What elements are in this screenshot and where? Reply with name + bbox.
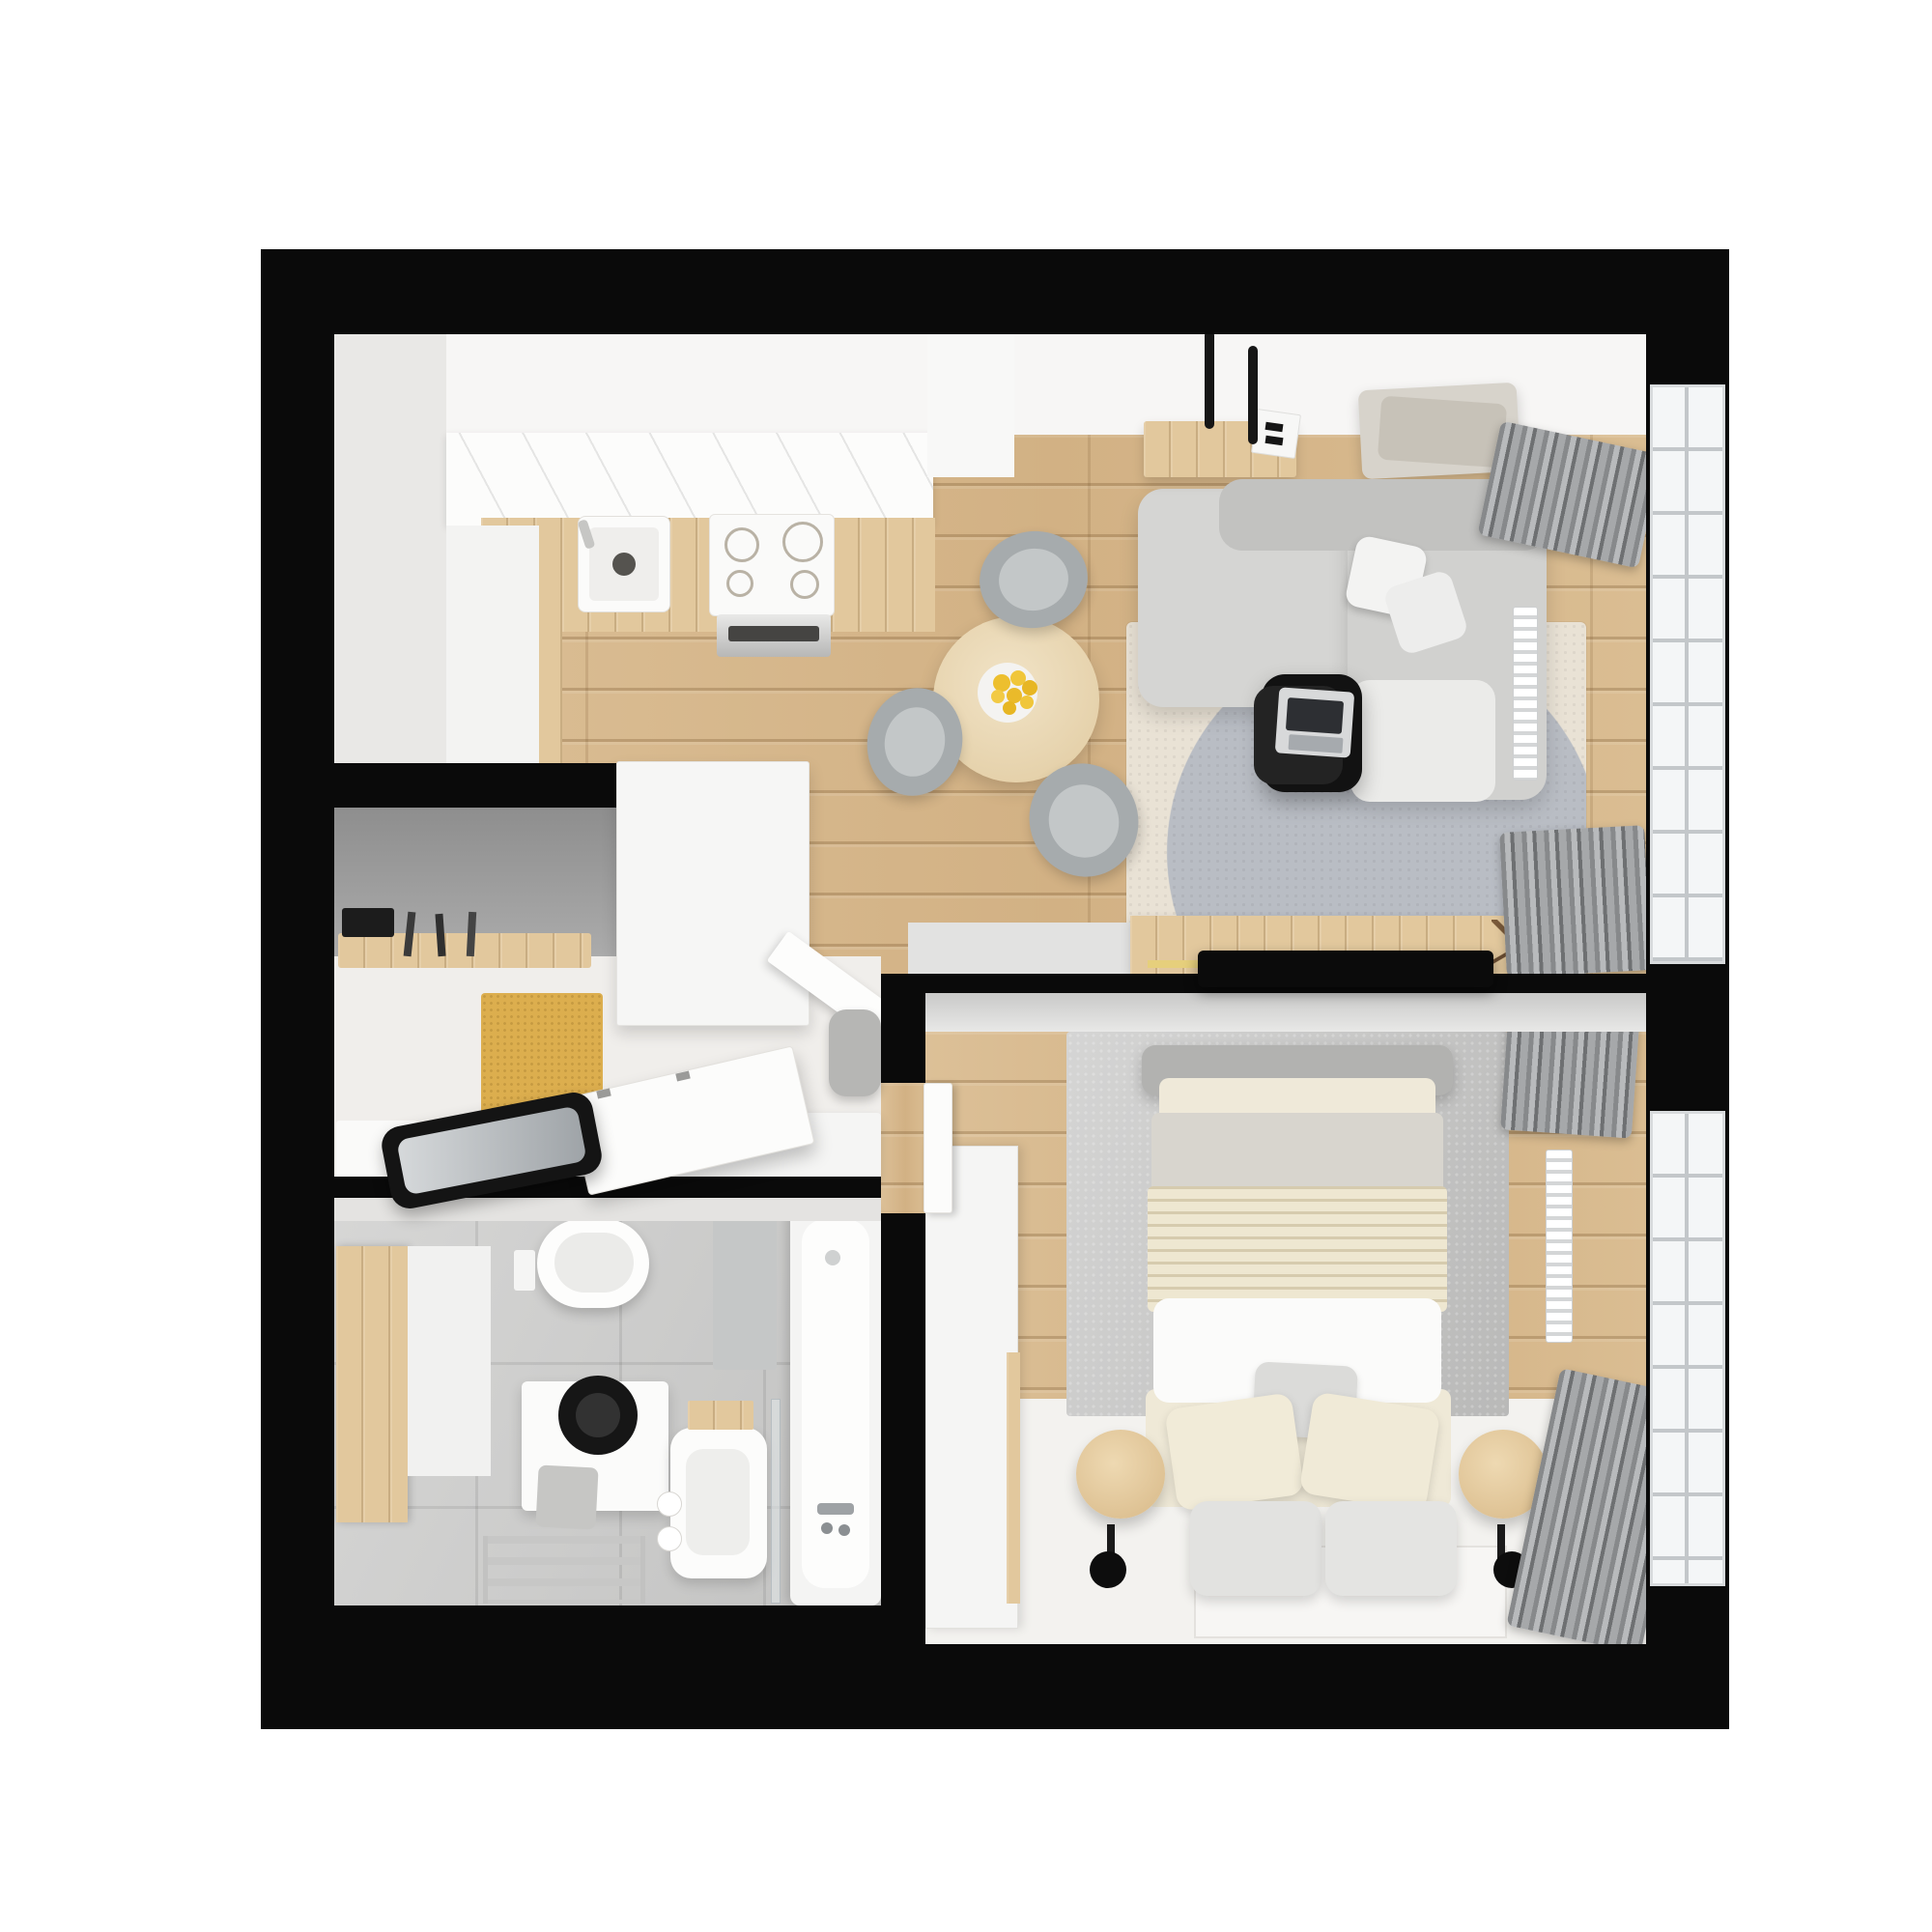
towel-ladder-radiator [483, 1536, 645, 1604]
toilet-paper-1 [657, 1492, 682, 1517]
wall-hall-bedroom-upper [881, 974, 925, 1083]
burner-1 [724, 527, 759, 562]
radiator-living [1513, 607, 1538, 781]
floor-lamp-left [1090, 1551, 1126, 1588]
toilet-paper-2 [657, 1526, 682, 1551]
hanging-towel [713, 1213, 777, 1370]
lemon-6 [1020, 696, 1034, 709]
oven-door-slot [728, 626, 819, 641]
wall-outer-top [261, 249, 1729, 334]
tv-flat-panel [1198, 951, 1493, 987]
bath-tall-cabinet [336, 1246, 408, 1522]
wall-bathroom-top [261, 1177, 881, 1198]
wall-lamp-2 [1248, 346, 1258, 444]
wall-hall-bedroom-lower [881, 1213, 925, 1644]
curtain-living-bottom [1499, 825, 1652, 978]
kitchen-end-cabinet [927, 332, 1014, 477]
kitchen-worktop [481, 518, 935, 632]
shower-glass-screen [771, 1399, 781, 1604]
tub-faucet [817, 1503, 854, 1515]
tub-drain [825, 1250, 840, 1265]
bedroom-wardrobe-door-edge [1007, 1352, 1020, 1604]
bench-cushion-left [1190, 1501, 1321, 1596]
wall-face-tv [925, 993, 1646, 1032]
tub-handle-2 [838, 1524, 850, 1536]
hall-stool [829, 1009, 881, 1096]
laptop-keyboard [1286, 697, 1344, 734]
wall-art-textile-b [1378, 396, 1507, 469]
stool-left [1076, 1430, 1165, 1519]
bed-striped-blanket [1148, 1186, 1447, 1312]
burner-2 [726, 570, 753, 597]
lemon-4 [991, 690, 1005, 703]
bedroom-door-leaf [923, 1083, 952, 1213]
apartment-floor-plan-render [0, 0, 1932, 1932]
coat-shelf [338, 933, 591, 968]
burner-3 [782, 522, 823, 562]
bed-folded-sheet [1151, 1113, 1443, 1194]
tub-handle-1 [821, 1522, 833, 1534]
bidet-shelf [688, 1401, 753, 1430]
vanity-towel [535, 1464, 598, 1529]
floor-bedroom-doorway-wood [881, 1083, 925, 1213]
coat-folded-item [342, 908, 394, 937]
bidet-bowl [686, 1449, 750, 1555]
window-bedroom [1650, 1111, 1725, 1586]
bed-pillow-left [1164, 1392, 1304, 1511]
wall-niche-top [334, 763, 616, 808]
decor-book [1251, 409, 1301, 459]
sink-drain [612, 553, 636, 576]
bath-wall-panel [408, 1246, 491, 1476]
lemon-3 [1022, 680, 1037, 696]
wall-outer-bottom-bedroom [910, 1644, 1729, 1729]
toilet-flush-plate [514, 1250, 535, 1291]
toilet-lid [554, 1233, 634, 1293]
vanity-basin-inner [576, 1393, 620, 1437]
kitchen-base-column [446, 526, 539, 763]
lemon-7 [1003, 701, 1016, 715]
bedroom-wardrobe [925, 1146, 1018, 1629]
burner-4 [790, 570, 819, 599]
wall-band-left [334, 332, 446, 763]
radiator-bedroom [1546, 1150, 1573, 1343]
wall-outer-bottom-bathroom [261, 1605, 910, 1729]
kitchen-upper-cabinets [446, 433, 933, 526]
window-living [1650, 384, 1725, 964]
bed-pillow-right [1299, 1391, 1441, 1512]
wall-lamp-1 [1205, 330, 1214, 429]
wall-outer-left [261, 249, 334, 1729]
bathtub-inner [802, 1219, 869, 1588]
sofa-ottoman [1350, 680, 1495, 802]
bench-cushion-right [1325, 1501, 1457, 1596]
tv-console-left [908, 923, 1130, 975]
hall-wardrobe [616, 761, 810, 1026]
